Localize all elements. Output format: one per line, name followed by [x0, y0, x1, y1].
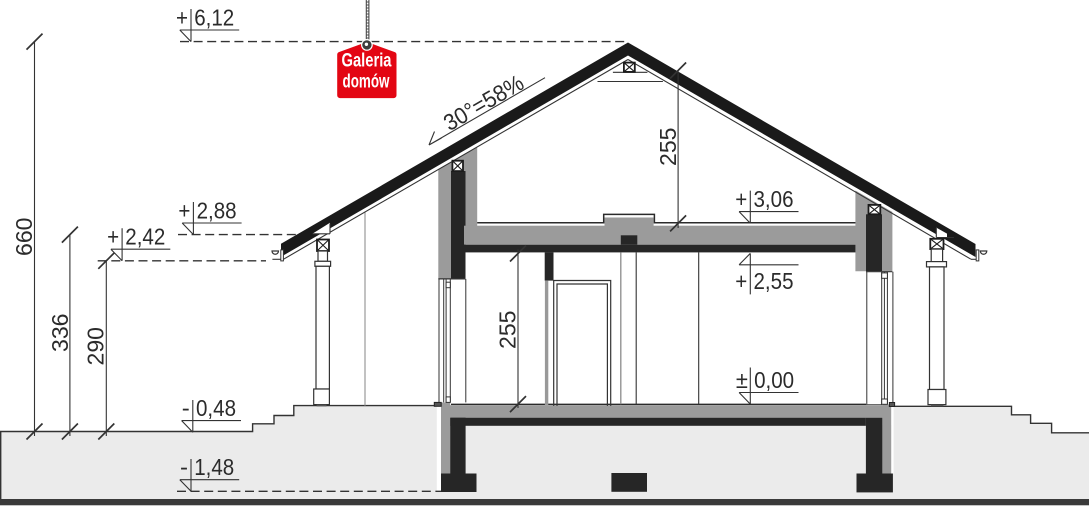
svg-text:+: + — [176, 4, 188, 30]
svg-text:0,00: 0,00 — [754, 367, 794, 393]
svg-text:2,55: 2,55 — [754, 268, 794, 294]
svg-text:-: - — [180, 454, 188, 480]
svg-text:1,48: 1,48 — [194, 454, 234, 480]
svg-text:±: ± — [736, 367, 748, 393]
svg-text:2,42: 2,42 — [125, 224, 165, 250]
svg-text:3,06: 3,06 — [754, 186, 794, 212]
svg-text:255: 255 — [655, 128, 681, 167]
svg-text:6,12: 6,12 — [194, 4, 234, 30]
svg-text:290: 290 — [83, 327, 109, 366]
svg-text:2,88: 2,88 — [197, 197, 237, 223]
svg-text:255: 255 — [495, 311, 521, 350]
svg-text:+: + — [735, 186, 747, 212]
svg-text:+: + — [735, 268, 747, 294]
svg-text:+: + — [107, 224, 119, 250]
svg-text:-: - — [182, 395, 190, 421]
svg-text:0,48: 0,48 — [196, 395, 236, 421]
svg-text:domów: domów — [343, 70, 391, 92]
svg-text:+: + — [178, 197, 190, 223]
svg-text:336: 336 — [47, 314, 73, 353]
svg-text:660: 660 — [11, 218, 37, 257]
svg-text:Galeria: Galeria — [342, 50, 392, 72]
